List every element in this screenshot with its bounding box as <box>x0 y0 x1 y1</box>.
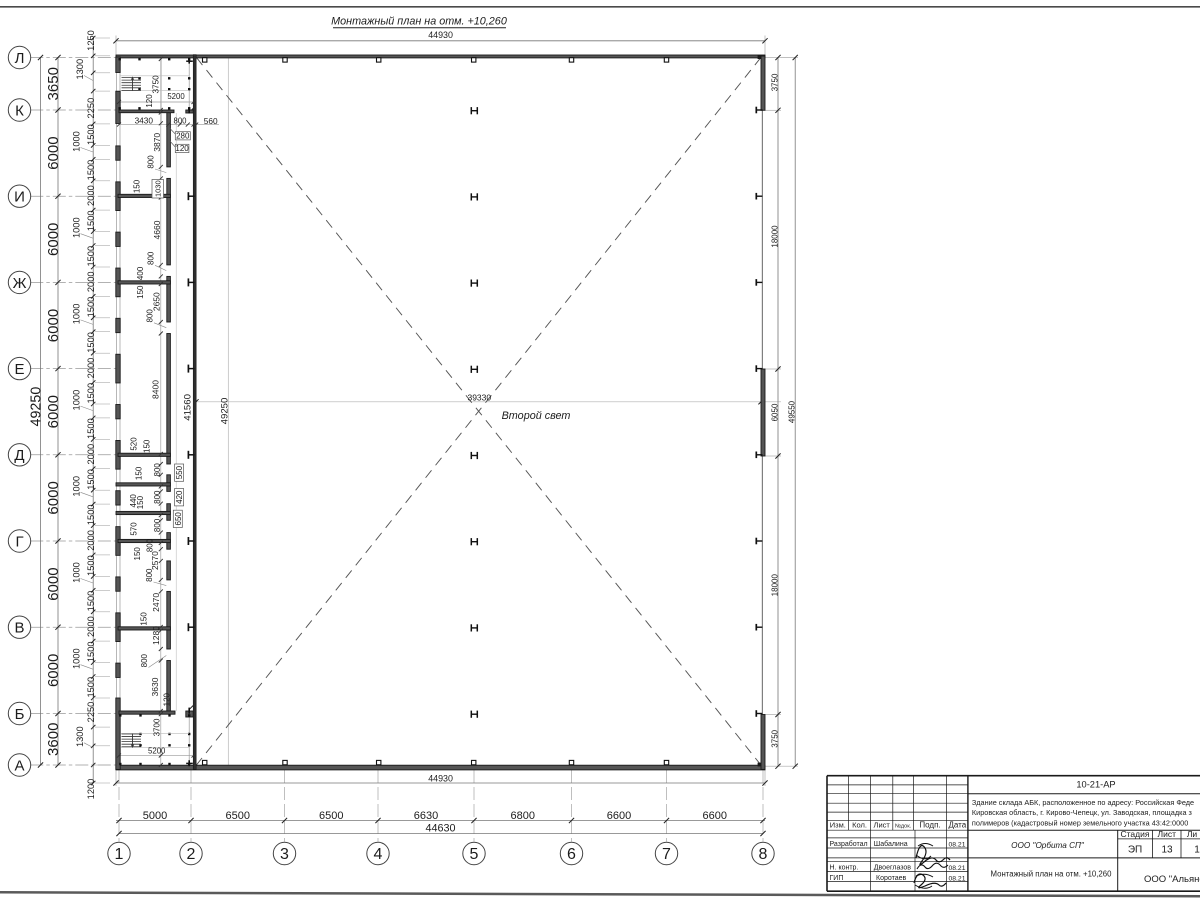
svg-text:44630: 44630 <box>425 822 455 834</box>
svg-text:18000: 18000 <box>770 574 779 597</box>
svg-text:1500: 1500 <box>86 641 96 662</box>
svg-text:39330: 39330 <box>467 392 491 402</box>
svg-text:150: 150 <box>133 547 142 561</box>
svg-text:Г: Г <box>15 533 23 550</box>
svg-text:1500: 1500 <box>86 210 96 231</box>
svg-text:6000: 6000 <box>45 395 62 428</box>
svg-text:Ж: Ж <box>13 275 27 292</box>
svg-text:Двоеглазов: Двоеглазов <box>874 864 911 871</box>
svg-text:Д: Д <box>14 447 24 464</box>
svg-text:800: 800 <box>173 117 187 126</box>
svg-text:Кировская область, г. Кирово-Ч: Кировская область, г. Кирово-Чепецк, ул.… <box>972 808 1193 817</box>
svg-text:Изм.: Изм. <box>830 821 846 830</box>
svg-text:41560: 41560 <box>182 394 193 421</box>
svg-text:49550: 49550 <box>787 400 796 423</box>
svg-text:3870: 3870 <box>152 133 162 152</box>
svg-text:1500: 1500 <box>86 555 96 576</box>
svg-text:4660: 4660 <box>152 220 162 239</box>
svg-text:120: 120 <box>163 692 172 706</box>
svg-text:44930: 44930 <box>428 774 453 784</box>
svg-text:10-21-АР: 10-21-АР <box>1076 779 1115 789</box>
svg-text:550: 550 <box>175 465 184 479</box>
svg-text:1000: 1000 <box>72 304 82 325</box>
svg-text:5: 5 <box>470 846 479 863</box>
svg-text:13: 13 <box>1161 844 1173 855</box>
svg-text:1030: 1030 <box>153 180 162 197</box>
svg-text:6000: 6000 <box>45 654 62 687</box>
svg-text:800: 800 <box>147 155 156 169</box>
svg-text:ООО "Альянс: ООО "Альянс <box>1144 874 1200 885</box>
svg-text:4: 4 <box>374 846 383 863</box>
svg-text:6500: 6500 <box>226 810 250 822</box>
svg-text:И: И <box>14 189 25 206</box>
svg-text:№док.: №док. <box>895 823 912 829</box>
svg-text:120: 120 <box>175 144 189 153</box>
svg-text:1000: 1000 <box>72 562 82 583</box>
svg-text:1280: 1280 <box>151 626 161 645</box>
svg-text:6000: 6000 <box>45 309 62 342</box>
svg-text:420: 420 <box>175 490 184 504</box>
svg-text:2000: 2000 <box>86 444 96 465</box>
svg-text:08.21: 08.21 <box>948 875 965 882</box>
svg-text:800: 800 <box>145 538 154 552</box>
svg-text:49250: 49250 <box>28 387 44 427</box>
svg-text:6000: 6000 <box>45 136 62 169</box>
svg-text:Здание склада АБК, расположенн: Здание склада АБК, расположенное по адре… <box>972 798 1194 807</box>
svg-text:3750: 3750 <box>770 73 779 91</box>
svg-text:1500: 1500 <box>86 504 96 525</box>
svg-text:44930: 44930 <box>428 30 453 40</box>
svg-text:1500: 1500 <box>86 246 96 267</box>
svg-text:А: А <box>14 757 24 774</box>
svg-text:2250: 2250 <box>86 98 96 119</box>
svg-text:800: 800 <box>140 653 149 667</box>
svg-text:2570: 2570 <box>150 551 160 570</box>
svg-text:1500: 1500 <box>86 591 96 612</box>
svg-text:6050: 6050 <box>770 403 779 421</box>
svg-text:520: 520 <box>130 437 139 451</box>
svg-text:Стадия: Стадия <box>1121 829 1150 839</box>
svg-text:08.21: 08.21 <box>948 842 965 849</box>
svg-text:3650: 3650 <box>45 67 62 100</box>
svg-text:Лист: Лист <box>874 821 891 830</box>
svg-text:2000: 2000 <box>86 358 96 379</box>
svg-text:800: 800 <box>146 309 155 323</box>
svg-text:Второй свет: Второй свет <box>502 410 571 422</box>
svg-text:2000: 2000 <box>86 271 96 292</box>
svg-text:800: 800 <box>147 251 156 265</box>
svg-text:6600: 6600 <box>703 810 727 822</box>
svg-text:2: 2 <box>187 846 196 863</box>
svg-text:08.21: 08.21 <box>948 865 965 872</box>
svg-text:1200: 1200 <box>86 779 96 800</box>
svg-text:1000: 1000 <box>72 390 82 411</box>
svg-text:49250: 49250 <box>220 398 231 425</box>
svg-text:6000: 6000 <box>45 223 62 256</box>
svg-text:6000: 6000 <box>45 567 62 600</box>
svg-text:6: 6 <box>567 846 576 863</box>
svg-text:1500: 1500 <box>86 383 96 404</box>
svg-text:1000: 1000 <box>72 131 82 152</box>
svg-text:800: 800 <box>145 568 154 582</box>
svg-text:18000: 18000 <box>770 225 779 248</box>
svg-text:1500: 1500 <box>86 160 96 181</box>
svg-text:5200: 5200 <box>167 92 185 101</box>
svg-text:Разработал: Разработал <box>830 840 868 848</box>
svg-text:570: 570 <box>130 522 139 536</box>
svg-text:Е: Е <box>14 361 24 378</box>
svg-text:1250: 1250 <box>86 30 96 51</box>
svg-text:ЭП: ЭП <box>1128 844 1142 855</box>
svg-text:2470: 2470 <box>151 593 161 612</box>
svg-text:1500: 1500 <box>86 332 96 353</box>
svg-text:1500: 1500 <box>86 297 96 318</box>
svg-text:1000: 1000 <box>72 648 82 669</box>
svg-text:5000: 5000 <box>143 810 167 822</box>
svg-text:1300: 1300 <box>75 726 85 747</box>
svg-text:120: 120 <box>145 94 154 108</box>
svg-text:1000: 1000 <box>72 476 82 497</box>
svg-text:150: 150 <box>143 439 152 453</box>
svg-text:3750: 3750 <box>151 75 160 94</box>
svg-text:Б: Б <box>15 706 25 723</box>
svg-text:3630: 3630 <box>150 677 160 696</box>
svg-text:150: 150 <box>136 495 145 509</box>
svg-text:280: 280 <box>176 131 190 140</box>
svg-text:Шабалина: Шабалина <box>874 840 908 848</box>
svg-text:2000: 2000 <box>86 616 96 637</box>
svg-text:К: К <box>15 102 24 119</box>
svg-text:Кол.: Кол. <box>852 821 867 830</box>
svg-text:150: 150 <box>139 612 148 626</box>
svg-text:3430: 3430 <box>135 115 154 125</box>
svg-text:Коротаев: Коротаев <box>876 875 907 882</box>
svg-text:1000: 1000 <box>72 217 82 238</box>
svg-text:400: 400 <box>136 266 145 280</box>
svg-text:1: 1 <box>115 846 124 863</box>
svg-text:1300: 1300 <box>75 59 85 80</box>
svg-text:Монтажный план на отм. +10,260: Монтажный план на отм. +10,260 <box>331 15 507 27</box>
svg-text:полимеров (кадастровый номер з: полимеров (кадастровый номер земельного … <box>972 819 1188 828</box>
svg-text:8400: 8400 <box>150 380 160 399</box>
svg-text:1: 1 <box>1194 844 1200 855</box>
svg-text:7: 7 <box>662 846 671 863</box>
svg-text:1500: 1500 <box>86 418 96 439</box>
svg-text:2650: 2650 <box>151 292 161 311</box>
svg-text:8: 8 <box>759 846 768 863</box>
svg-text:1500: 1500 <box>86 124 96 145</box>
svg-text:1500: 1500 <box>86 677 96 698</box>
svg-text:2000: 2000 <box>86 185 96 206</box>
svg-text:Лист: Лист <box>1158 829 1177 839</box>
svg-text:Ли: Ли <box>1187 829 1198 839</box>
svg-text:ГИП: ГИП <box>830 875 844 882</box>
svg-text:150: 150 <box>135 466 144 480</box>
svg-text:Л: Л <box>15 50 25 67</box>
svg-text:800: 800 <box>153 463 162 477</box>
svg-text:Н. контр.: Н. контр. <box>830 864 859 871</box>
svg-text:В: В <box>14 620 24 637</box>
svg-text:Подп.: Подп. <box>919 821 940 830</box>
svg-text:6630: 6630 <box>414 810 438 822</box>
svg-text:3750: 3750 <box>770 729 779 747</box>
svg-text:3600: 3600 <box>45 723 62 756</box>
svg-text:6500: 6500 <box>319 810 343 822</box>
svg-text:800: 800 <box>153 518 162 532</box>
svg-text:1500: 1500 <box>86 469 96 490</box>
svg-text:5200: 5200 <box>148 747 166 756</box>
svg-text:2250: 2250 <box>86 702 96 723</box>
svg-text:3: 3 <box>280 846 289 863</box>
svg-text:Монтажный план на отм. +10,260: Монтажный план на отм. +10,260 <box>991 870 1113 879</box>
svg-text:6000: 6000 <box>45 481 62 514</box>
svg-text:800: 800 <box>153 490 162 504</box>
svg-text:650: 650 <box>174 512 183 526</box>
svg-text:2000: 2000 <box>86 530 96 551</box>
svg-text:6800: 6800 <box>511 810 535 822</box>
svg-text:150: 150 <box>132 179 141 193</box>
svg-text:Дата: Дата <box>948 821 966 830</box>
svg-text:ООО "Орбита СП": ООО "Орбита СП" <box>1011 841 1085 850</box>
svg-text:6600: 6600 <box>607 810 631 822</box>
svg-text:3700: 3700 <box>152 718 161 736</box>
svg-text:560: 560 <box>204 116 218 126</box>
svg-text:150: 150 <box>136 285 145 299</box>
